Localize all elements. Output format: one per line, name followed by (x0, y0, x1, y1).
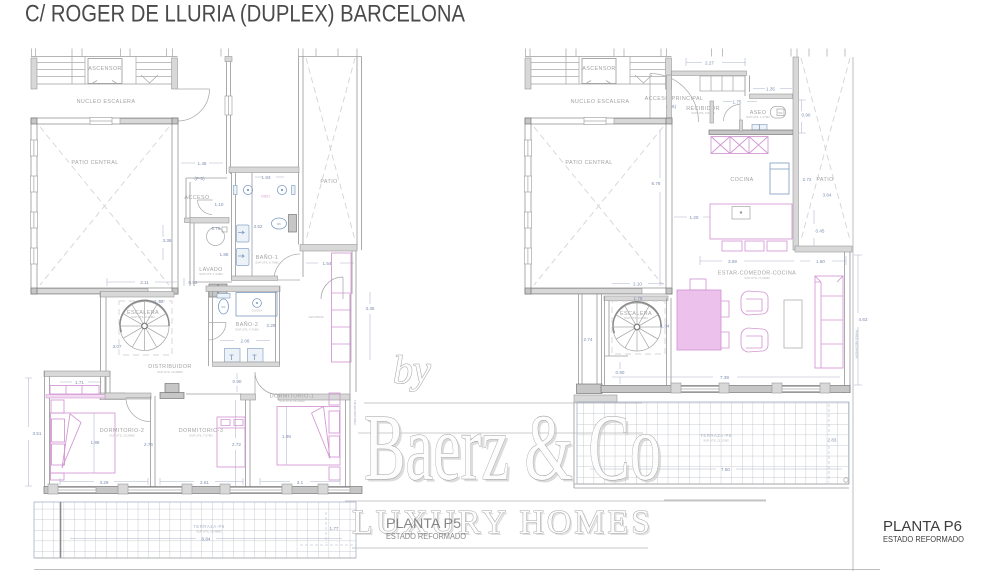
svg-text:VESTIDOR: VESTIDOR (308, 315, 324, 319)
svg-text:3.29: 3.29 (100, 480, 109, 485)
svg-text:3.52: 3.52 (254, 224, 263, 229)
svg-text:0.70: 0.70 (212, 226, 221, 231)
svg-text:1.35: 1.35 (766, 87, 775, 92)
svg-text:7.39: 7.39 (720, 375, 729, 380)
svg-text:(P-5): (P-5) (194, 176, 205, 181)
svg-text:WC: WC (221, 305, 225, 309)
svg-text:1.10: 1.10 (215, 202, 224, 207)
svg-text:4.63: 4.63 (859, 317, 868, 322)
svg-text:SUP.UTIL 13.28M2: SUP.UTIL 13.28M2 (157, 370, 183, 374)
svg-text:0.90: 0.90 (233, 379, 242, 384)
svg-text:1.20: 1.20 (690, 215, 699, 220)
svg-text:2.72: 2.72 (232, 442, 241, 447)
svg-text:Baerz & Co: Baerz & Co (364, 396, 661, 500)
svg-text:SUP.UTIL 10.28M2: SUP.UTIL 10.28M2 (109, 434, 135, 438)
svg-text:ACCESO PRINCIPAL: ACCESO PRINCIPAL (645, 96, 704, 102)
svg-text:PATIO: PATIO (320, 179, 337, 185)
svg-text:SUP.UTIL 77.69M2: SUP.UTIL 77.69M2 (744, 276, 770, 280)
svg-text:2.83: 2.83 (828, 438, 837, 443)
svg-text:SUP.UTIL 7.07M2: SUP.UTIL 7.07M2 (189, 434, 213, 438)
svg-text:PLANTA P5: PLANTA P5 (386, 515, 461, 531)
svg-text:3.1: 3.1 (297, 480, 304, 485)
svg-text:SUP.UTIL 4.72M2: SUP.UTIL 4.72M2 (235, 328, 259, 332)
svg-text:TERRAZA-P5: TERRAZA-P5 (193, 524, 224, 529)
svg-text:3.36: 3.36 (163, 238, 172, 243)
svg-text:0.45: 0.45 (816, 229, 825, 234)
svg-text:PATIO CENTRAL: PATIO CENTRAL (71, 160, 118, 166)
svg-text:PARED MEDIANERA: PARED MEDIANERA (855, 330, 859, 359)
svg-text:3.64: 3.64 (823, 193, 832, 198)
svg-text:1.80: 1.80 (816, 259, 825, 264)
svg-text:ESTADO REFORMADO: ESTADO REFORMADO (386, 532, 466, 541)
svg-text:SUP.UTIL 1.27M2: SUP.UTIL 1.27M2 (746, 115, 770, 119)
svg-text:8.84: 8.84 (202, 537, 211, 542)
svg-text:SUP.UTIL 21.17M2: SUP.UTIL 21.17M2 (703, 439, 729, 443)
svg-text:TOLDO MOTORIZ.: TOLDO MOTORIZ. (353, 400, 357, 426)
svg-text:2.10: 2.10 (633, 282, 642, 287)
svg-text:1.79: 1.79 (634, 296, 643, 301)
svg-text:COCINA: COCINA (730, 177, 753, 183)
svg-text:1.84: 1.84 (661, 324, 670, 329)
svg-text:SUP.UTIL 1.94M2: SUP.UTIL 1.94M2 (199, 272, 223, 276)
svg-text:6.78: 6.78 (652, 181, 661, 186)
svg-text:2.27: 2.27 (705, 61, 714, 66)
svg-text:DUCHA: DUCHA (252, 309, 263, 313)
svg-text:1.88: 1.88 (220, 252, 229, 257)
svg-text:DICH.: DICH. (261, 195, 270, 199)
svg-text:2.29: 2.29 (267, 323, 276, 328)
svg-text:NUCLEO ESCALERA: NUCLEO ESCALERA (77, 99, 136, 105)
svg-text:2.74: 2.74 (584, 337, 593, 342)
svg-text:1.71: 1.71 (75, 380, 84, 385)
svg-text:1.77: 1.77 (330, 526, 339, 531)
svg-text:7.50: 7.50 (721, 467, 730, 472)
svg-text:PATIO CENTRAL: PATIO CENTRAL (565, 160, 612, 166)
svg-text:3.07: 3.07 (113, 344, 122, 349)
svg-text:2.72: 2.72 (803, 177, 812, 182)
svg-text:TERRAZA-P6: TERRAZA-P6 (700, 433, 731, 438)
svg-text:3.51: 3.51 (33, 431, 42, 436)
svg-text:1.98: 1.98 (91, 440, 100, 445)
svg-text:WC: WC (778, 111, 782, 115)
svg-text:1.92: 1.92 (155, 299, 164, 304)
svg-text:0.90: 0.90 (616, 370, 625, 375)
svg-text:SUP.UTIL 6.79M2: SUP.UTIL 6.79M2 (255, 261, 279, 265)
svg-text:1.75: 1.75 (733, 100, 742, 105)
svg-text:SUP.UTIL 18.48M2: SUP.UTIL 18.48M2 (196, 530, 222, 534)
svg-text:3.69: 3.69 (728, 259, 737, 264)
svg-text:ASCENSOR: ASCENSOR (88, 66, 121, 72)
svg-text:SUP.UTIL 3.43M2: SUP.UTIL 3.43M2 (131, 315, 155, 319)
svg-text:3.36: 3.36 (366, 306, 375, 311)
svg-text:ASCENSOR: ASCENSOR (582, 66, 615, 72)
svg-text:1.54: 1.54 (323, 261, 332, 266)
svg-text:1.93: 1.93 (262, 175, 271, 180)
svg-text:WC: WC (277, 222, 281, 226)
svg-text:NUCLEO ESCALERA: NUCLEO ESCALERA (571, 99, 630, 105)
svg-text:C/ ROGER DE LLURIA (DUPLEX) B: C/ ROGER DE LLURIA (DUPLEX) BARCELONA (25, 1, 465, 28)
svg-text:PATIO: PATIO (816, 177, 833, 183)
svg-text:SUP.UTIL 3.43M2: SUP.UTIL 3.43M2 (624, 316, 648, 320)
svg-text:1.98: 1.98 (282, 434, 291, 439)
svg-text:PLANTA P6: PLANTA P6 (883, 518, 962, 535)
svg-text:1.48: 1.48 (198, 161, 207, 166)
svg-text:2.11: 2.11 (140, 280, 149, 285)
svg-text:0.90: 0.90 (802, 113, 811, 118)
svg-text:ESTADO REFORMADO: ESTADO REFORMADO (883, 534, 964, 544)
svg-text:2.61: 2.61 (200, 480, 209, 485)
svg-text:2.76: 2.76 (144, 442, 153, 447)
svg-text:by: by (393, 347, 431, 392)
svg-text:2.06: 2.06 (241, 339, 250, 344)
svg-text:SUP.UTIL 15.24M2: SUP.UTIL 15.24M2 (279, 399, 305, 403)
